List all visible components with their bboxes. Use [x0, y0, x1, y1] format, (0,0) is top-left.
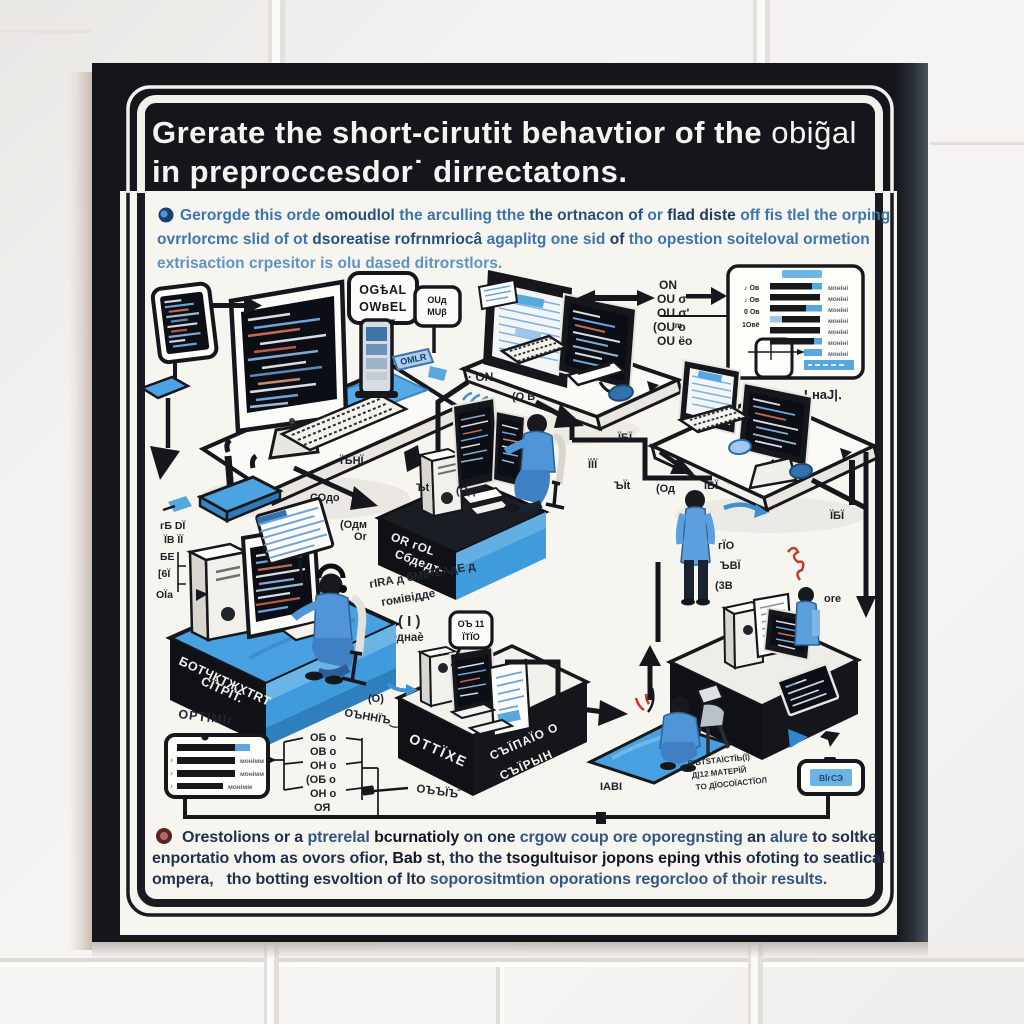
- svg-text:моніні: моніні: [828, 306, 848, 314]
- svg-text:ovrrlorcmc slid of ot dsoreati: ovrrlorcmc slid of ot dsoreatise rofrnmr…: [157, 231, 870, 248]
- svg-text:· ON: · ON: [468, 370, 493, 384]
- svg-text:IАВI: IАВI: [600, 781, 622, 793]
- svg-text:ВЇгСЭ: ВЇгСЭ: [819, 773, 843, 783]
- svg-text:(3В: (3В: [715, 580, 733, 592]
- svg-text:ON: ON: [659, 278, 677, 292]
- svg-text:монімм: монімм: [240, 770, 264, 778]
- svg-text:♪ Oв: ♪ Oв: [744, 297, 760, 304]
- svg-text:♪: ♪: [170, 784, 173, 790]
- svg-text:ЇЇЇ: ЇЇЇ: [587, 458, 598, 471]
- svg-text:ОБ о: ОБ о: [310, 732, 337, 744]
- svg-text:гЇО: гЇО: [718, 539, 735, 552]
- svg-text:OU σ: OU σ: [657, 292, 687, 306]
- svg-text:♪ Oв: ♪ Oв: [744, 285, 760, 292]
- svg-text:моніні: моніні: [828, 284, 848, 292]
- svg-text:(Од: (Од: [656, 483, 675, 495]
- svg-text:(О): (О): [368, 693, 384, 705]
- svg-text:enportatio vhom as ovors ofior: enportatio vhom as ovors ofior, Bab st, …: [152, 850, 885, 867]
- svg-text:ОН о: ОН о: [310, 760, 337, 772]
- svg-text:моніні: моніні: [828, 295, 848, 303]
- svg-text:монімм: монімм: [228, 783, 252, 791]
- svg-text:монімм: монімм: [240, 757, 264, 765]
- svg-text:Gerorgde this orde omoudlol th: Gerorgde this orde omoudlol the arcullin…: [180, 207, 890, 224]
- svg-text:OGѣAL: OGѣAL: [359, 283, 406, 297]
- svg-text:OUд: OUд: [427, 295, 447, 305]
- svg-text:Ъt: Ъt: [416, 482, 430, 494]
- svg-text:1Oвё: 1Oвё: [742, 322, 760, 329]
- svg-text:Orestolions or a ptrerelal bcu: Orestolions or a ptrerelal bcurnatioly o…: [182, 829, 877, 846]
- svg-text:ЇБЇ: ЇБЇ: [829, 509, 845, 522]
- svg-text:ompera, tho botting esvoltio: ompera, tho botting esvoltion of lto sop…: [152, 871, 827, 888]
- svg-text:Оr: Оr: [354, 531, 368, 543]
- svg-text:[6Ї: [6Ї: [158, 567, 171, 580]
- svg-text:♪: ♪: [170, 771, 173, 777]
- svg-text:ЇТЇО: ЇТЇО: [461, 632, 479, 642]
- svg-text:ЇБЇ: ЇБЇ: [703, 479, 719, 492]
- svg-text:in preproccesdor˙ dirrectatons: in preproccesdor˙ dirrectatons.: [152, 154, 627, 189]
- svg-text:гБ DЇ: гБ DЇ: [160, 519, 186, 532]
- svg-text:( І ): ( І ): [398, 613, 421, 630]
- svg-text:ОЪ 11: ОЪ 11: [458, 619, 485, 629]
- svg-text:ЇЪНЇ: ЇЪНЇ: [339, 454, 365, 467]
- svg-text:ЪВЇ: ЪВЇ: [720, 559, 742, 572]
- svg-text:(OU ͫo: (OU ͫo: [653, 320, 686, 334]
- svg-text:(Одм: (Одм: [340, 519, 367, 531]
- svg-text:(Од: (Од: [456, 485, 475, 497]
- svg-text:ЇБЇ: ЇБЇ: [617, 431, 633, 444]
- svg-text:моніні: моніні: [828, 328, 848, 336]
- svg-text:моніні: моніні: [828, 350, 848, 358]
- svg-text:БЕ: БЕ: [160, 551, 175, 563]
- svg-text:ОВ о: ОВ о: [310, 746, 337, 758]
- svg-text:OU σ': OU σ': [657, 306, 690, 320]
- svg-text:MUβ: MUβ: [427, 307, 447, 317]
- svg-text:ОН о: ОН о: [310, 788, 337, 800]
- svg-text:моніні: моніні: [828, 339, 848, 347]
- svg-text:OWвEL: OWвEL: [359, 300, 407, 314]
- svg-text:(ОБ о: (ОБ о: [306, 774, 336, 786]
- svg-text:OU ёo: OU ёo: [657, 334, 692, 348]
- svg-text:0 Oв: 0 Oв: [744, 309, 760, 316]
- svg-text:Grerate the short-cirutit beh: Grerate the short-cirutit behavtior of t…: [152, 115, 857, 150]
- svg-text:моніні: моніні: [828, 317, 848, 325]
- svg-text:СОдо: СОдо: [310, 492, 340, 504]
- svg-text:оrе: оrе: [824, 593, 841, 605]
- svg-text:ОЇа: ОЇа: [156, 588, 173, 601]
- svg-text:ЇВ ЇЇ: ЇВ ЇЇ: [163, 533, 184, 546]
- svg-text:ОЯ: ОЯ: [314, 802, 330, 814]
- svg-text:(О В: (О В: [512, 391, 535, 403]
- svg-text:♪: ♪: [170, 758, 173, 764]
- svg-text:ЪЇt: ЪЇt: [614, 479, 631, 492]
- svg-text:extrisaction crpesitor is olu: extrisaction crpesitor is olu dased ditr…: [157, 255, 502, 272]
